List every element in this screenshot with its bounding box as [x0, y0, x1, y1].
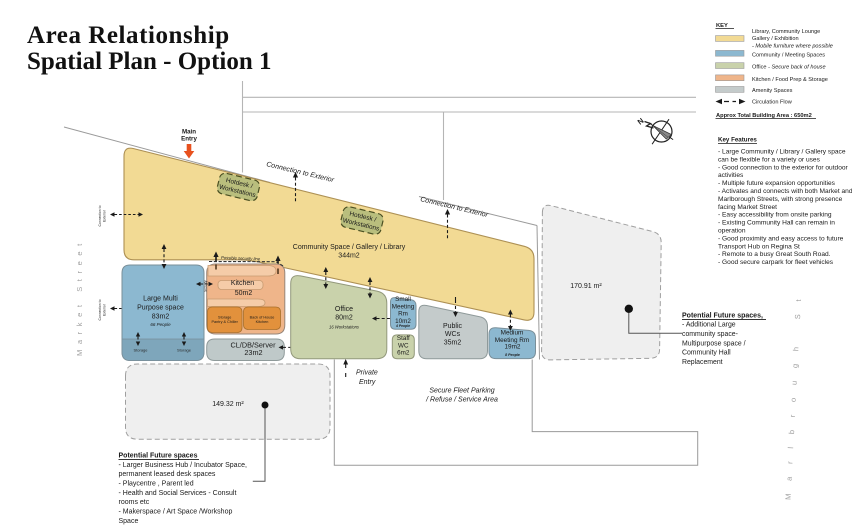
svg-text:Back of House: Back of House	[250, 316, 275, 320]
svg-text:Area Relationship: Area Relationship	[27, 22, 230, 49]
svg-text:344m2: 344m2	[338, 253, 360, 260]
svg-text:Community Space / Gallery / Li: Community Space / Gallery / Library	[293, 244, 406, 251]
svg-text:WC: WC	[398, 342, 409, 349]
svg-text:Storage: Storage	[133, 348, 148, 353]
svg-text:Pantry & Chiller: Pantry & Chiller	[212, 320, 239, 324]
svg-text:Community Hall: Community Hall	[682, 350, 731, 357]
svg-text:Rm: Rm	[398, 311, 408, 318]
svg-text:Connection to: Connection to	[98, 299, 102, 320]
svg-text:permanent leased desk spaces: permanent leased desk spaces	[119, 471, 216, 478]
svg-text:Connection to: Connection to	[98, 205, 102, 226]
svg-text:Private: Private	[356, 370, 378, 377]
svg-text:Approx Total Building Area : 6: Approx Total Building Area : 650m2	[716, 113, 812, 119]
svg-text:Large Multi: Large Multi	[143, 296, 178, 303]
svg-text:Medium: Medium	[501, 330, 524, 337]
svg-text:Replacement: Replacement	[682, 359, 723, 366]
svg-text:Main: Main	[182, 129, 196, 136]
svg-text:6m2: 6m2	[397, 350, 410, 357]
svg-text:19m2: 19m2	[505, 344, 521, 351]
svg-text:rooms etc: rooms etc	[119, 499, 150, 506]
svg-text:Kitchen: Kitchen	[256, 320, 269, 324]
svg-text:Community / Meeting Spaces: Community / Meeting Spaces	[752, 52, 825, 58]
svg-text:- Good proximity and easy acce: - Good proximity and easy access to futu…	[718, 235, 844, 242]
svg-text:- Multiple future expansion op: - Multiple future expansion opportunitie…	[718, 180, 836, 187]
svg-text:Entry: Entry	[181, 136, 197, 143]
svg-text:- Large Community / Library /: - Large Community / Library / Gallery sp…	[718, 149, 846, 156]
svg-text:Market Street: Market Street	[75, 238, 84, 356]
svg-text:- Good secure carpark for flee: - Good secure carpark for fleet vehicles	[718, 259, 834, 266]
svg-text:operation: operation	[718, 228, 746, 235]
svg-text:Office: Office	[335, 306, 353, 313]
svg-text:Entry: Entry	[359, 379, 376, 386]
svg-text:Public: Public	[443, 323, 463, 330]
svg-text:- Existing Community Hall can: - Existing Community Hall can remain in	[718, 220, 835, 227]
svg-text:Purpose space: Purpose space	[137, 305, 184, 312]
svg-text:23m2: 23m2	[244, 348, 262, 357]
svg-text:149.32 m²: 149.32 m²	[212, 401, 244, 408]
svg-text:Security: Security	[204, 280, 208, 292]
svg-text:- Good connection to the exter: - Good connection to the exterior for ou…	[718, 164, 849, 171]
svg-text:Kitchen: Kitchen	[231, 280, 254, 287]
svg-text:8 People: 8 People	[505, 353, 520, 357]
svg-text:Library, Community Lounge: Library, Community Lounge	[752, 29, 820, 35]
svg-text:Staff: Staff	[397, 335, 410, 342]
svg-text:- Makerspace / Art Space /Work: - Makerspace / Art Space /Workshop	[119, 509, 233, 516]
svg-text:Storage: Storage	[177, 348, 192, 353]
svg-text:Transport Hub on Regina St: Transport Hub on Regina St	[718, 243, 800, 250]
svg-text:- Mobile furniture where possi: - Mobile furniture where possible	[752, 43, 833, 49]
svg-text:Potential Future spaces: Potential Future spaces	[119, 453, 198, 460]
svg-text:facing Market Street: facing Market Street	[718, 204, 777, 211]
svg-text:Meeting: Meeting	[392, 303, 415, 310]
svg-text:can be flexible for a variety: can be flexible for a variety or uses	[718, 156, 821, 163]
svg-text:/ Refuse / Service Area: / Refuse / Service Area	[425, 397, 498, 404]
svg-text:- Easy accessibility from onsi: - Easy accessibility from onsite parking	[718, 212, 832, 219]
svg-text:Key Features: Key Features	[718, 137, 757, 144]
svg-text:- Remote to a busy Great South: - Remote to a busy Great South Road.	[718, 251, 831, 258]
svg-text:Spatial Plan - Option 1: Spatial Plan - Option 1	[27, 48, 272, 75]
svg-text:Gallery / Exhibition: Gallery / Exhibition	[752, 36, 799, 42]
svg-text:community space-: community space-	[682, 331, 738, 338]
svg-text:80m2: 80m2	[335, 315, 353, 322]
svg-text:83m2: 83m2	[152, 314, 170, 321]
svg-text:50m2: 50m2	[235, 290, 253, 297]
svg-text:170.91 m²: 170.91 m²	[570, 283, 602, 290]
svg-text:16 Workstations: 16 Workstations	[329, 325, 360, 330]
svg-text:Secure Fleet Parking: Secure Fleet Parking	[429, 388, 494, 395]
svg-text:- Additional Large: - Additional Large	[682, 322, 736, 329]
svg-text:- Playcentre , Parent led: - Playcentre , Parent led	[119, 481, 194, 488]
svg-text:WCs: WCs	[445, 331, 461, 338]
svg-text:Office - Secure back of house: Office - Secure back of house	[752, 65, 826, 71]
svg-text:- Health and Social Services -: - Health and Social Services - Consult	[119, 490, 237, 497]
svg-text:Circulation Flow: Circulation Flow	[752, 100, 793, 106]
svg-text:Exterior: Exterior	[103, 303, 107, 316]
svg-text:4 People: 4 People	[395, 324, 410, 328]
svg-text:- Larger Business Hub / Incuba: - Larger Business Hub / Incubator Space,	[119, 462, 247, 469]
svg-text:Small: Small	[395, 296, 411, 303]
svg-text:Exterior: Exterior	[103, 209, 107, 222]
svg-text:66 People: 66 People	[150, 322, 171, 327]
svg-text:Space: Space	[119, 518, 139, 525]
svg-text:activities: activities	[718, 172, 744, 179]
svg-text:Marlborough Streets, with stro: Marlborough Streets, with strong presenc…	[718, 196, 843, 203]
svg-text:Multipurpose space /: Multipurpose space /	[682, 340, 746, 347]
svg-text:Kitchen / Food Prep & Storage: Kitchen / Food Prep & Storage	[752, 77, 828, 83]
svg-text:35m2: 35m2	[444, 339, 462, 346]
svg-text:Potential Future spaces,: Potential Future spaces,	[682, 313, 763, 320]
svg-text:KEY: KEY	[716, 23, 728, 29]
svg-text:Storage: Storage	[218, 316, 231, 320]
svg-text:- Activates and connects with: - Activates and connects with both Marke…	[718, 188, 852, 195]
svg-text:Amenity Spaces: Amenity Spaces	[752, 88, 793, 94]
